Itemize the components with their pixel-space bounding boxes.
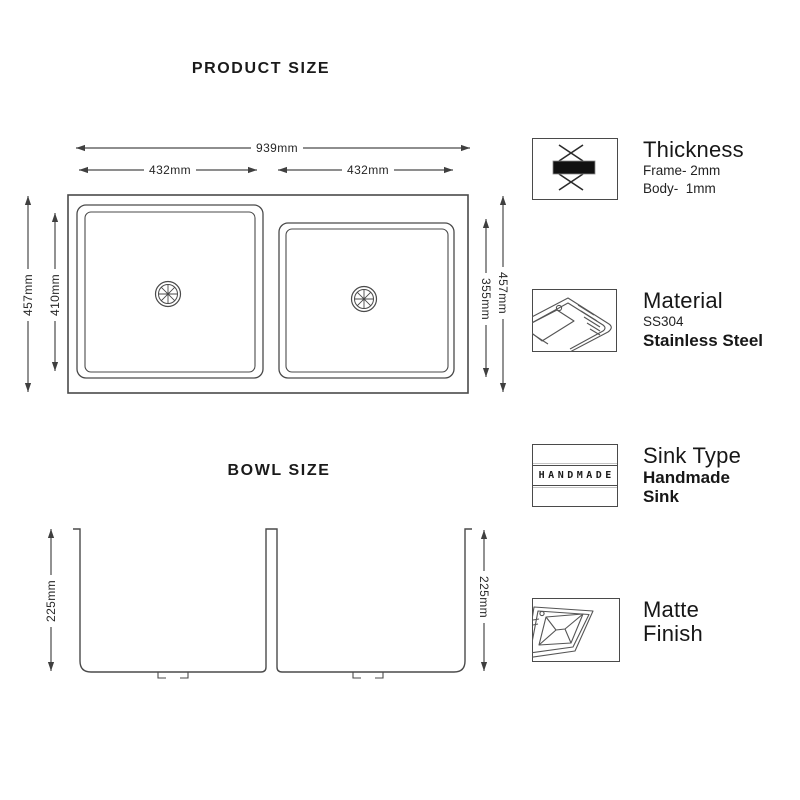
feature-title: Finish bbox=[643, 622, 703, 646]
material-sink-icon bbox=[532, 289, 618, 352]
bowl-size-title: BOWL SIZE bbox=[228, 462, 331, 480]
dim-right-bowl-depth: 225mm bbox=[477, 571, 491, 623]
handmade-band-label: HANDMADE bbox=[533, 465, 617, 486]
feature-detail: SS304 bbox=[643, 313, 763, 331]
feature-title: Matte bbox=[643, 598, 703, 622]
sink-cross-section bbox=[73, 529, 472, 678]
dim-right-bowl-width: 432mm bbox=[342, 163, 394, 177]
feature-title: Material bbox=[643, 289, 763, 313]
feature-sink-type-text: Sink Type Handmade Sink bbox=[643, 444, 741, 506]
product-spec-sheet: PRODUCT SIZE BOWL SIZE 939mm 432mm 432mm… bbox=[0, 0, 800, 800]
feature-detail-bold: Stainless Steel bbox=[643, 331, 763, 350]
sink-dimension-drawing bbox=[0, 0, 800, 800]
feature-detail-bold: Sink bbox=[643, 487, 741, 506]
dim-right-outer-height: 457mm bbox=[496, 267, 510, 319]
thickness-icon bbox=[532, 138, 618, 200]
feature-matte-finish: Matte Finish bbox=[532, 598, 703, 662]
drain-strainer-icon bbox=[156, 282, 377, 312]
dim-left-outer-height: 457mm bbox=[21, 269, 35, 321]
product-size-title: PRODUCT SIZE bbox=[192, 60, 330, 78]
feature-detail-bold: Handmade bbox=[643, 468, 741, 487]
feature-title: Thickness bbox=[643, 138, 744, 162]
feature-material-text: Material SS304 Stainless Steel bbox=[643, 289, 763, 350]
sink-top-view bbox=[68, 195, 468, 393]
feature-detail: Body- 1mm bbox=[643, 180, 744, 198]
dim-overall-width: 939mm bbox=[251, 141, 303, 155]
dim-left-bowl-height: 410mm bbox=[48, 269, 62, 321]
feature-detail: Frame- 2mm bbox=[643, 162, 744, 180]
dim-right-bowl-height: 355mm bbox=[479, 273, 493, 325]
feature-thickness: Thickness Frame- 2mm Body- 1mm bbox=[532, 138, 744, 200]
handmade-badge-icon: HANDMADE bbox=[532, 444, 618, 507]
dim-left-bowl-depth: 225mm bbox=[44, 575, 58, 627]
dimension-arrowheads bbox=[25, 145, 506, 671]
feature-matte-finish-text: Matte Finish bbox=[643, 598, 703, 646]
feature-sink-type: HANDMADE Sink Type Handmade Sink bbox=[532, 444, 741, 507]
feature-title: Sink Type bbox=[643, 444, 741, 468]
matte-finish-sink-icon bbox=[532, 598, 618, 662]
feature-material: Material SS304 Stainless Steel bbox=[532, 289, 763, 352]
dim-left-bowl-width: 432mm bbox=[144, 163, 196, 177]
feature-thickness-text: Thickness Frame- 2mm Body- 1mm bbox=[643, 138, 744, 198]
